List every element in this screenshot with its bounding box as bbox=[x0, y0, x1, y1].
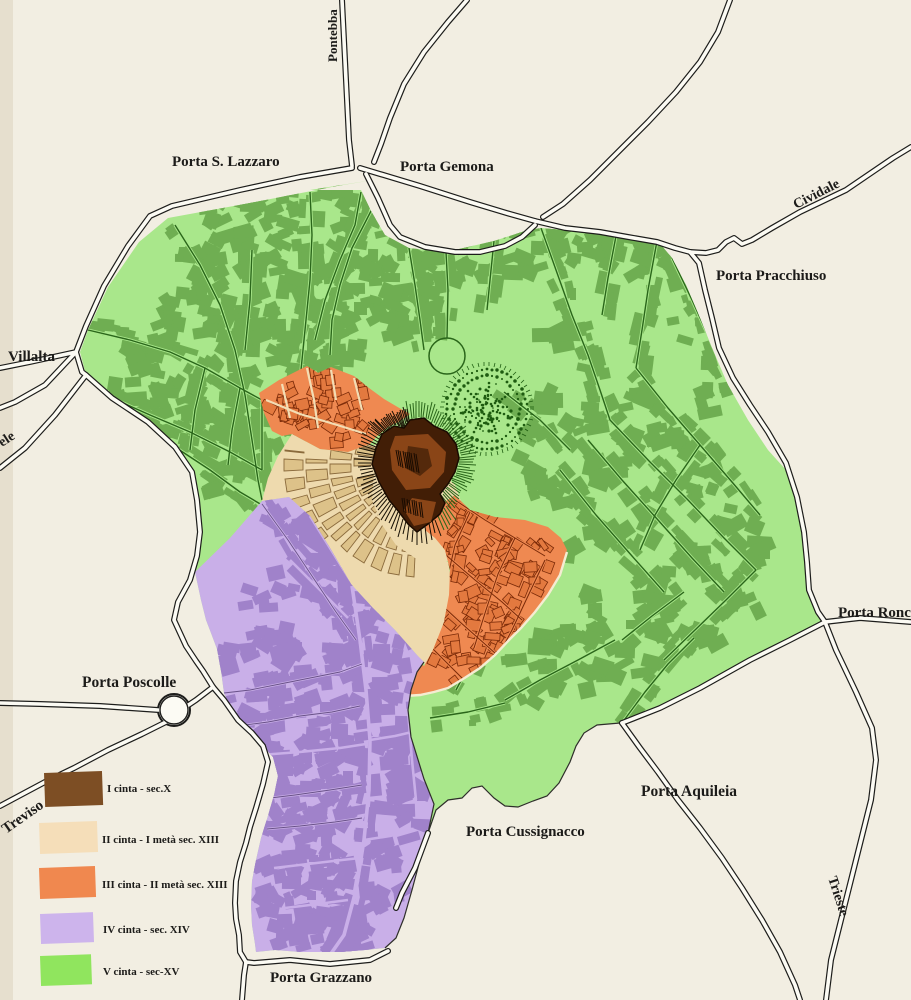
svg-text:Porta Ronchi: Porta Ronchi bbox=[838, 605, 911, 621]
svg-text:IV cinta - sec. XIV: IV cinta - sec. XIV bbox=[103, 924, 190, 936]
svg-text:III cinta - II metà sec. XIII: III cinta - II metà sec. XIII bbox=[102, 879, 228, 891]
svg-text:Villalta: Villalta bbox=[8, 349, 55, 365]
svg-text:Porta Cussignacco: Porta Cussignacco bbox=[466, 824, 585, 840]
svg-text:Porta Aquileia: Porta Aquileia bbox=[641, 783, 737, 800]
svg-text:Porta Gemona: Porta Gemona bbox=[400, 159, 494, 175]
svg-text:II cinta - I metà sec. XIII: II cinta - I metà sec. XIII bbox=[102, 834, 219, 846]
svg-text:V cinta - sec-XV: V cinta - sec-XV bbox=[103, 966, 180, 978]
svg-text:Pontebba: Pontebba bbox=[325, 9, 340, 62]
svg-text:Porta Poscolle: Porta Poscolle bbox=[82, 674, 176, 691]
svg-text:Porta S. Lazzaro: Porta S. Lazzaro bbox=[172, 154, 280, 170]
svg-text:I cinta - sec.X: I cinta - sec.X bbox=[107, 783, 171, 795]
svg-text:Porta Grazzano: Porta Grazzano bbox=[270, 970, 372, 986]
svg-text:Porta Pracchiuso: Porta Pracchiuso bbox=[716, 268, 826, 284]
